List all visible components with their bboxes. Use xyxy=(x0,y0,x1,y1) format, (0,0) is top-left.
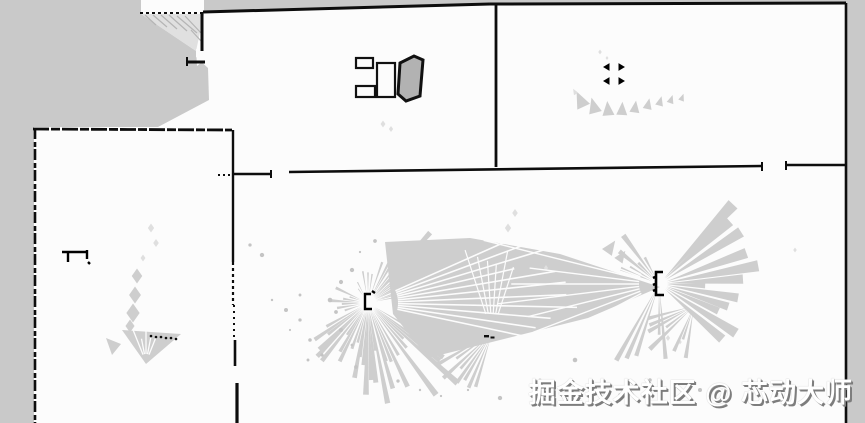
speckle xyxy=(440,395,442,397)
scan-hit-dot xyxy=(160,336,163,339)
speckle xyxy=(359,251,361,253)
speckle xyxy=(260,253,264,257)
table-block-1 xyxy=(356,58,373,68)
speckle xyxy=(248,243,251,246)
left-room-top-wall xyxy=(33,129,232,130)
speckle xyxy=(299,294,302,297)
speckle xyxy=(320,353,323,356)
unknown-right-strip xyxy=(846,0,865,423)
speckle xyxy=(339,328,343,332)
tilted-object xyxy=(398,56,423,101)
scan-hit-dot xyxy=(170,337,173,340)
speckle xyxy=(308,338,312,342)
top-wall-right xyxy=(490,3,846,4)
scan-hit-dot xyxy=(155,336,158,339)
speckle xyxy=(289,329,291,331)
speckle xyxy=(350,268,354,272)
table-block-2 xyxy=(356,86,375,97)
scan-hit-dash-2 xyxy=(491,337,495,339)
cabinet-outline xyxy=(377,63,395,97)
speckle xyxy=(419,389,421,391)
speckle xyxy=(339,280,343,284)
speckle xyxy=(354,365,358,369)
unknown-left-strip xyxy=(0,127,34,423)
watermark-text: 掘金技术社区 @ 芯动大师 xyxy=(529,371,853,410)
speckle xyxy=(373,239,377,243)
speckle xyxy=(334,310,338,314)
speckle xyxy=(573,358,578,363)
speckle xyxy=(271,299,273,301)
speckle xyxy=(284,308,288,312)
speckle xyxy=(498,396,502,400)
speckle xyxy=(396,379,399,382)
speckle xyxy=(351,344,354,347)
scan-hit-dot xyxy=(165,337,168,340)
scan-hit-dash-1 xyxy=(484,335,489,337)
speckle xyxy=(298,318,301,321)
screenshot-root: 掘金技术社区 @ 芯动大师 xyxy=(0,0,865,423)
scan-hit-dot xyxy=(175,338,178,341)
scan-hit-dot xyxy=(150,335,153,338)
slam-map-canvas xyxy=(0,0,865,423)
speckle xyxy=(467,389,469,391)
speckle xyxy=(328,298,333,303)
speckle xyxy=(307,359,310,362)
